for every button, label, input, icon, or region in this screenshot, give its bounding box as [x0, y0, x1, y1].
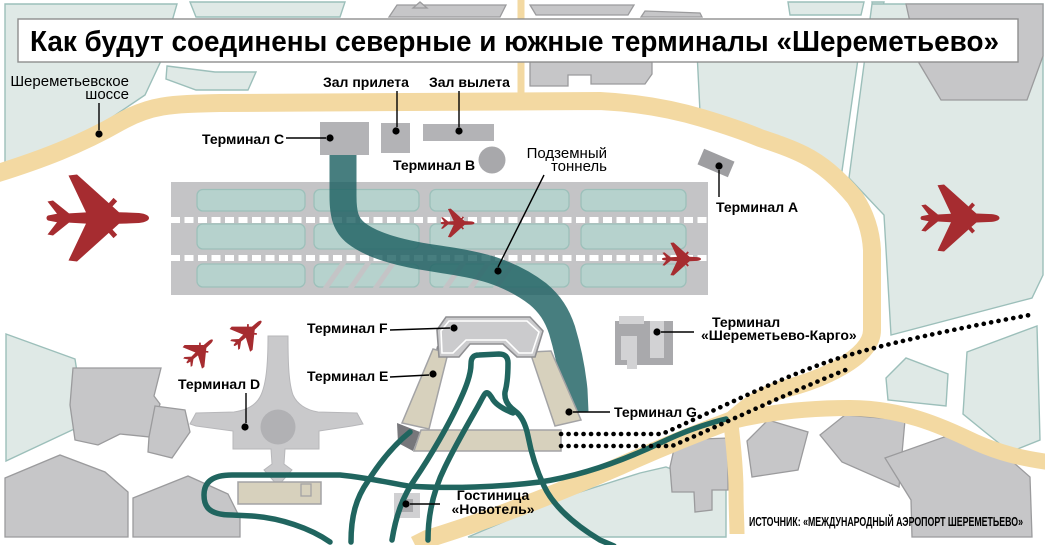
svg-text:«Новотель»: «Новотель»	[451, 501, 534, 517]
svg-text:Терминал G: Терминал G	[614, 404, 697, 420]
svg-text:Зал вылета: Зал вылета	[429, 74, 510, 90]
svg-text:«Шереметьево-Карго»: «Шереметьево-Карго»	[701, 327, 857, 343]
svg-text:Терминал B: Терминал B	[393, 157, 475, 173]
svg-text:Терминал A: Терминал A	[716, 199, 798, 215]
svg-text:ИСТОЧНИК: «МЕЖДУНАРОДНЫЙ АЭРОП: ИСТОЧНИК: «МЕЖДУНАРОДНЫЙ АЭРОПОРТ ШЕРЕМЕ…	[749, 514, 1023, 529]
svg-text:Зал прилета: Зал прилета	[323, 74, 409, 90]
svg-text:Терминал E: Терминал E	[307, 368, 388, 384]
svg-text:Как будут соединены северные и: Как будут соединены северные и южные тер…	[30, 26, 999, 58]
svg-text:тоннель: тоннель	[551, 158, 607, 175]
svg-text:Терминал D: Терминал D	[178, 376, 260, 392]
svg-text:Терминал C: Терминал C	[202, 131, 284, 147]
svg-text:Терминал F: Терминал F	[307, 320, 388, 336]
svg-text:шоссе: шоссе	[85, 86, 129, 103]
